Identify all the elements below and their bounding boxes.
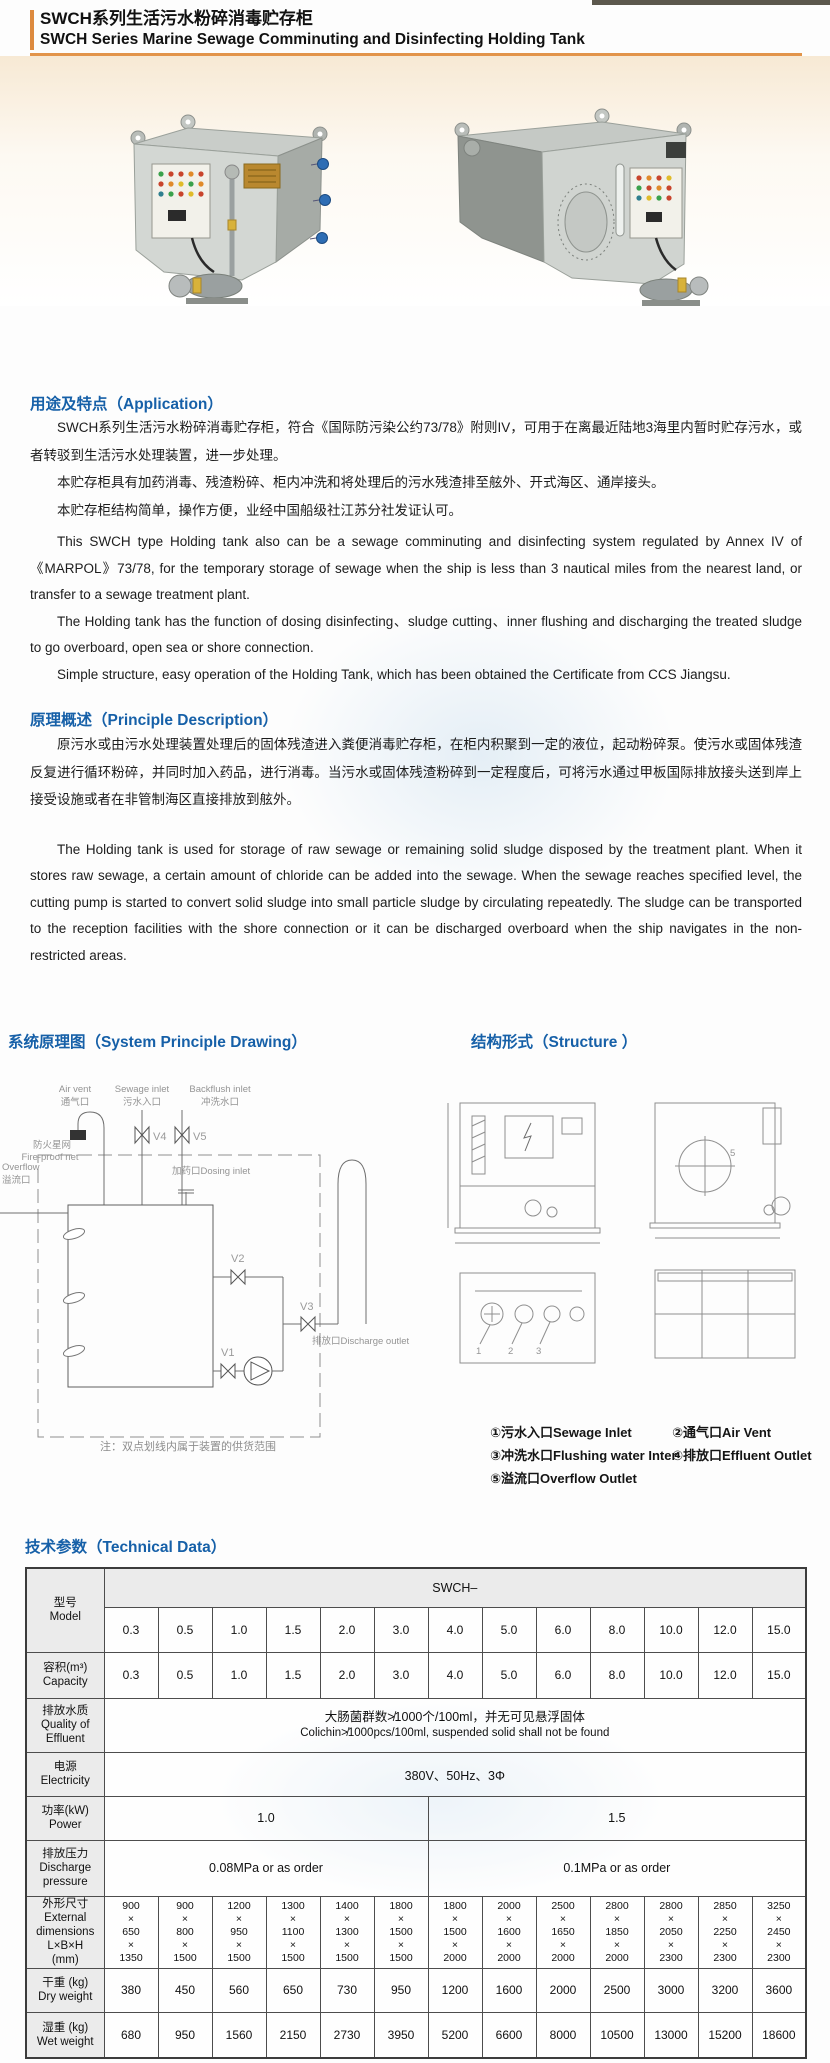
table-row-pressure: 排放压力 Discharge pressure 0.08MPa or as or… <box>26 1840 806 1896</box>
cutting-pump <box>640 277 708 306</box>
application-en-p3: Simple structure, easy operation of the … <box>30 662 802 689</box>
row-label-pressure: 排放压力 Discharge pressure <box>26 1840 104 1896</box>
table-cell: 560 <box>212 1968 266 2012</box>
table-cell: 4.0 <box>428 1607 482 1652</box>
quality-cell: 大肠菌群数≯1000个/100ml，并无可见悬浮固体 Colichin≯1000… <box>104 1698 806 1752</box>
table-cell: 1.5 <box>266 1652 320 1698</box>
structure-front-view <box>448 1103 600 1243</box>
legend-flushing-inlet: ③冲洗水口Flushing water Inter <box>490 1444 677 1467</box>
pressure-left-cell: 0.08MPa or as order <box>104 1840 428 1896</box>
legend-sewage-inlet: ①污水入口Sewage Inlet <box>490 1421 632 1444</box>
table-cell: 1800 × 1500 × 1500 <box>374 1896 428 1968</box>
legend-overflow-outlet: ⑤溢流口Overflow Outlet <box>490 1467 637 1490</box>
table-cell: 3600 <box>752 1968 806 2012</box>
valve-v5 <box>175 1127 182 1143</box>
air-vent-label-en: Air vent <box>59 1084 92 1095</box>
table-cell: 15.0 <box>752 1652 806 1698</box>
overflow-label-zh: 溢流口 <box>2 1174 31 1186</box>
table-cell: 1400 × 1300 × 1500 <box>320 1896 374 1968</box>
top-view-callout-1: 1 <box>476 1346 481 1357</box>
row-label-model: 型号 Model <box>26 1568 104 1652</box>
table-cell: 10.0 <box>644 1607 698 1652</box>
table-row-quality: 排放水质 Quality of Effluent 大肠菌群数≯1000个/100… <box>26 1698 806 1752</box>
table-cell: 2500 <box>590 1968 644 2012</box>
inlet-fitting <box>464 140 480 156</box>
discharge-label: 排放口Discharge outlet <box>312 1335 410 1347</box>
table-row-model-numbers: 0.30.51.01.52.03.04.05.06.08.010.012.015… <box>26 1607 806 1652</box>
section-heading-drawing: 系统原理图（System Principle Drawing） <box>8 1030 307 1052</box>
table-cell: 730 <box>320 1968 374 2012</box>
dosing-fitting <box>178 1190 194 1205</box>
section-heading-technical: 技术参数（Technical Data） <box>25 1535 226 1557</box>
row-label-wet-weight: 湿重 (kg) Wet weight <box>26 2012 104 2058</box>
electricity-cell: 380V、50Hz、3Φ <box>104 1752 806 1796</box>
power-right-cell: 1.5 <box>428 1796 806 1840</box>
table-cell: 950 <box>374 1968 428 2012</box>
principle-en: The Holding tank is used for storage of … <box>30 837 802 970</box>
page-title: SWCH系列生活污水粉碎消毒贮存柜 SWCH Series Marine Sew… <box>40 8 820 50</box>
backflush-label-zh: 冲洗水口 <box>201 1096 239 1108</box>
table-cell: 900 × 800 × 1500 <box>158 1896 212 1968</box>
sewage-inlet-label-zh: 污水入口 <box>123 1096 161 1108</box>
table-row-capacity: 容积(m³) Capacity 0.30.51.01.52.03.04.05.0… <box>26 1652 806 1698</box>
pressure-right-cell: 0.1MPa or as order <box>428 1840 806 1896</box>
v5-label: V5 <box>193 1131 206 1143</box>
valve-v2 <box>231 1270 238 1284</box>
legend-effluent-outlet: ④排放口Effluent Outlet <box>672 1444 812 1467</box>
row-label-electricity: 电源 Electricity <box>26 1752 104 1796</box>
table-cell: 450 <box>158 1968 212 2012</box>
fireproof-label-zh: 防火星网 <box>33 1139 71 1151</box>
table-cell: 2850 × 2250 × 2300 <box>698 1896 752 1968</box>
power-left-cell: 1.0 <box>104 1796 428 1840</box>
application-zh-p1: SWCH系列生活污水粉碎消毒贮存柜，符合《国际防污染公约73/78》附则IV，可… <box>30 414 802 469</box>
table-cell: 2.0 <box>320 1607 374 1652</box>
table-cell: 5.0 <box>482 1652 536 1698</box>
principle-text: 原污水或由污水处理装置处理后的固体残渣进入粪便消毒贮存柜，在柜内积聚到一定的液位… <box>30 731 802 969</box>
principle-zh: 原污水或由污水处理装置处理后的固体残渣进入粪便消毒贮存柜，在柜内积聚到一定的液位… <box>30 731 802 814</box>
table-cell: 2.0 <box>320 1652 374 1698</box>
row-label-power: 功率(kW) Power <box>26 1796 104 1840</box>
row-label-quality: 排放水质 Quality of Effluent <box>26 1698 104 1752</box>
valve-v4 <box>135 1127 142 1143</box>
legend-air-vent: ②通气口Air Vent <box>672 1421 771 1444</box>
table-cell: 4.0 <box>428 1652 482 1698</box>
table-cell: 2000 × 1600 × 2000 <box>482 1896 536 1968</box>
table-cell: 1200 <box>428 1968 482 2012</box>
table-cell: 3250 × 2450 × 2300 <box>752 1896 806 1968</box>
dosing-label: 加药口Dosing inlet <box>172 1166 250 1177</box>
valve-v1 <box>221 1364 228 1378</box>
table-cell: 950 <box>158 2012 212 2058</box>
row-label-dry-weight: 干重 (kg) Dry weight <box>26 1968 104 2012</box>
quality-zh: 大肠菌群数≯1000个/100ml，并无可见悬浮固体 <box>105 1709 806 1726</box>
table-cell: 5.0 <box>482 1607 536 1652</box>
row-label-dimensions: 外形尺寸 External dimensions L×B×H (mm) <box>26 1896 104 1968</box>
table-cell: 8.0 <box>590 1607 644 1652</box>
table-cell: 18600 <box>752 2012 806 2058</box>
table-cell: 1300 × 1100 × 1500 <box>266 1896 320 1968</box>
title-accent-bar <box>30 10 34 50</box>
table-cell: 8000 <box>536 2012 590 2058</box>
backflush-label-en: Backflush inlet <box>189 1084 251 1095</box>
quality-en: Colichin≯1000pcs/100ml, suspended solid … <box>105 1726 806 1741</box>
section-heading-structure: 结构形式（Structure ） <box>471 1030 637 1052</box>
table-row-dry-weight: 干重 (kg) Dry weight 380450560650730950120… <box>26 1968 806 2012</box>
table-cell: 6.0 <box>536 1607 590 1652</box>
cutting-pump <box>169 274 248 304</box>
table-cell: 8.0 <box>590 1652 644 1698</box>
application-en-p2: The Holding tank has the function of dos… <box>30 609 802 662</box>
table-cell: 2800 × 2050 × 2300 <box>644 1896 698 1968</box>
table-cell: 2730 <box>320 2012 374 2058</box>
application-zh-p2: 本贮存柜具有加药消毒、残渣粉碎、柜内冲洗和将处理后的污水残渣排至舷外、开式海区、… <box>30 469 802 497</box>
table-cell: 10.0 <box>644 1652 698 1698</box>
table-row-wet-weight: 湿重 (kg) Wet weight 680950156021502730395… <box>26 2012 806 2058</box>
discharge-riser <box>338 1160 366 1324</box>
catalog-page: SWCH系列生活污水粉碎消毒贮存柜 SWCH Series Marine Sew… <box>0 0 830 2063</box>
table-cell: 0.5 <box>158 1652 212 1698</box>
level-gauge <box>616 164 624 236</box>
air-vent-label-zh: 通气口 <box>61 1096 90 1108</box>
table-cell: 2000 <box>536 1968 590 2012</box>
table-cell: 12.0 <box>698 1652 752 1698</box>
v1-label: V1 <box>221 1347 234 1359</box>
table-cell: 1.0 <box>212 1652 266 1698</box>
drawing-note: 注：双点划线内属于装置的供货范围 <box>100 1439 276 1453</box>
v2-label: V2 <box>231 1253 244 1265</box>
page-edge-strip <box>592 0 830 5</box>
table-cell: 13000 <box>644 2012 698 2058</box>
product-photo-left <box>92 72 342 308</box>
table-cell: 2150 <box>266 2012 320 2058</box>
table-cell: 15.0 <box>752 1607 806 1652</box>
table-cell: 2500 × 1650 × 2000 <box>536 1896 590 1968</box>
series-cell: SWCH– <box>104 1568 806 1607</box>
table-cell: 3950 <box>374 2012 428 2058</box>
system-principle-drawing: Air vent 通气口 Sewage inlet 污水入口 Backflush… <box>0 1072 420 1457</box>
panel-display <box>168 210 186 221</box>
structure-side-view: 5 <box>650 1103 790 1238</box>
table-cell: 10500 <box>590 2012 644 2058</box>
table-cell: 0.3 <box>104 1652 158 1698</box>
fireproof-net <box>70 1130 86 1140</box>
row-label-capacity: 容积(m³) Capacity <box>26 1652 104 1698</box>
junction-box <box>666 142 686 158</box>
holding-tank <box>68 1205 213 1387</box>
overflow-label-en: Overflow <box>2 1162 40 1173</box>
table-cell: 1.5 <box>266 1607 320 1652</box>
section-heading-principle: 原理概述（Principle Description） <box>30 708 278 730</box>
technical-data-table: 型号 Model SWCH– 0.30.51.01.52.03.04.05.06… <box>25 1567 807 2059</box>
v3-label: V3 <box>300 1301 313 1313</box>
application-zh-p3: 本贮存柜结构简单，操作方便，业经中国船级社江苏分社发证认可。 <box>30 497 802 525</box>
pump-symbol <box>244 1357 272 1385</box>
table-row-model-series: 型号 Model SWCH– <box>26 1568 806 1607</box>
tank-side-face <box>276 138 322 262</box>
table-cell: 6.0 <box>536 1652 590 1698</box>
valve-v3 <box>301 1317 308 1331</box>
sewage-inlet-label-en: Sewage inlet <box>115 1084 170 1095</box>
table-cell: 650 <box>266 1968 320 2012</box>
table-cell: 0.3 <box>104 1607 158 1652</box>
table-cell: 3000 <box>644 1968 698 2012</box>
structure-top-view: 1 2 3 <box>460 1273 595 1363</box>
table-cell: 3200 <box>698 1968 752 2012</box>
table-cell: 3.0 <box>374 1607 428 1652</box>
table-cell: 1600 <box>482 1968 536 2012</box>
table-cell: 2800 × 1850 × 2000 <box>590 1896 644 1968</box>
table-row-dimensions: 外形尺寸 External dimensions L×B×H (mm) 900 … <box>26 1896 806 1968</box>
top-view-callout-2: 2 <box>508 1346 513 1357</box>
table-cell: 380 <box>104 1968 158 2012</box>
structure-frame-view <box>655 1270 795 1358</box>
table-cell: 1.0 <box>212 1607 266 1652</box>
table-cell: 15200 <box>698 2012 752 2058</box>
page-title-zh: SWCH系列生活污水粉碎消毒贮存柜 <box>40 8 820 30</box>
side-view-callout-5: 5 <box>730 1148 735 1159</box>
table-cell: 6600 <box>482 2012 536 2058</box>
table-cell: 1200 × 950 × 1500 <box>212 1896 266 1968</box>
top-view-callout-3: 3 <box>536 1346 541 1357</box>
structure-drawings: 5 1 2 3 <box>430 1078 820 1408</box>
vent-pipe <box>78 1112 104 1205</box>
panel-display <box>646 212 662 222</box>
table-cell: 900 × 650 × 1350 <box>104 1896 158 1968</box>
v4-label: V4 <box>153 1131 166 1143</box>
application-text: SWCH系列生活污水粉碎消毒贮存柜，符合《国际防污染公约73/78》附则IV，可… <box>30 414 802 688</box>
table-cell: 1560 <box>212 2012 266 2058</box>
table-row-power: 功率(kW) Power 1.0 1.5 <box>26 1796 806 1840</box>
table-cell: 3.0 <box>374 1652 428 1698</box>
product-photo-right <box>420 72 720 308</box>
table-cell: 12.0 <box>698 1607 752 1652</box>
table-cell: 680 <box>104 2012 158 2058</box>
table-cell: 5200 <box>428 2012 482 2058</box>
table-row-electricity: 电源 Electricity 380V、50Hz、3Φ <box>26 1752 806 1796</box>
application-en-p1: This SWCH type Holding tank also can be … <box>30 529 802 609</box>
table-cell: 1800 × 1500 × 2000 <box>428 1896 482 1968</box>
table-cell: 0.5 <box>158 1607 212 1652</box>
page-title-en: SWCH Series Marine Sewage Comminuting an… <box>40 30 820 50</box>
section-heading-application: 用途及特点（Application） <box>30 392 223 414</box>
